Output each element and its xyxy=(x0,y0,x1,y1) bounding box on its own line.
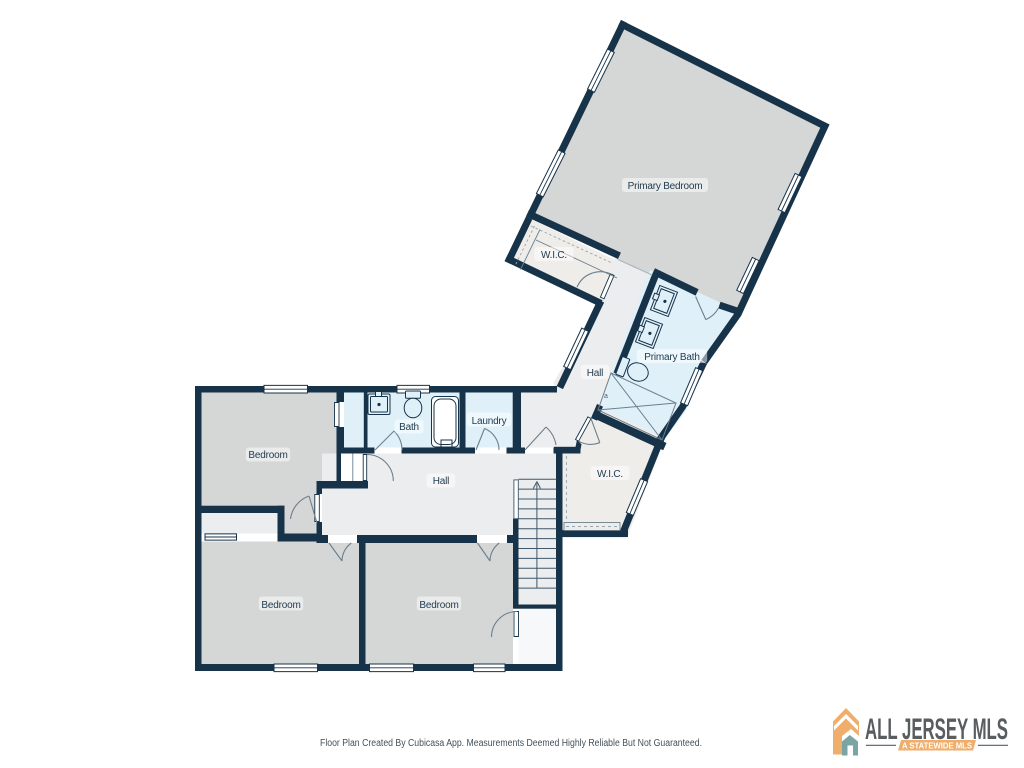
svg-text:A STATEWIDE MLS: A STATEWIDE MLS xyxy=(902,741,972,751)
svg-text:Laundry: Laundry xyxy=(472,416,507,427)
svg-text:Bath: Bath xyxy=(399,422,419,433)
svg-text:Primary Bath: Primary Bath xyxy=(644,352,699,363)
svg-text:Floor Plan Created By Cubicasa: Floor Plan Created By Cubicasa App. Meas… xyxy=(320,738,702,749)
svg-text:Bedroom: Bedroom xyxy=(261,600,300,611)
svg-text:Primary Bedroom: Primary Bedroom xyxy=(628,181,703,192)
svg-text:W.I.C.: W.I.C. xyxy=(541,250,567,261)
svg-text:W.I.C.: W.I.C. xyxy=(597,469,623,480)
svg-text:Bedroom: Bedroom xyxy=(248,450,287,461)
svg-text:Hall: Hall xyxy=(433,476,449,487)
svg-text:a: a xyxy=(604,393,608,400)
svg-text:Hall: Hall xyxy=(587,368,603,379)
svg-text:Bedroom: Bedroom xyxy=(419,600,458,611)
